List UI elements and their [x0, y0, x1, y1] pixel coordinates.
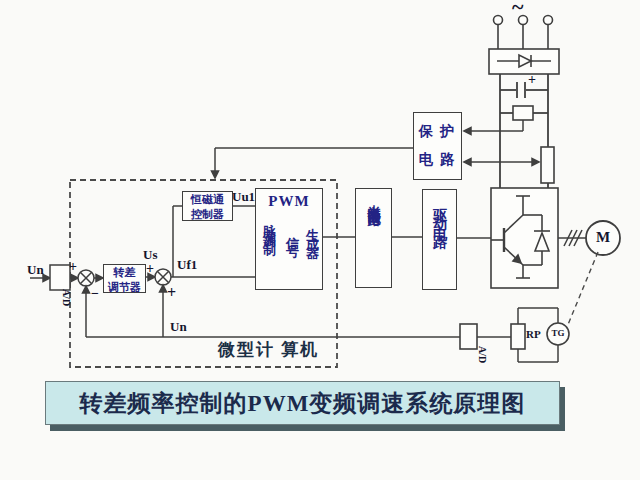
flux-controller-line2: 控制器: [183, 207, 232, 222]
driver-circuit-text: 驱动电路: [431, 197, 449, 233]
shunt-resistor: [541, 147, 554, 183]
arrow-icon: [83, 286, 90, 293]
ac-terminal-icon: [544, 16, 553, 25]
ad-feedback-box: [460, 324, 477, 349]
plus-sign: +: [167, 284, 176, 302]
inverter-block: [491, 188, 558, 288]
slip-regulator-block: 转差 调节器: [103, 264, 146, 293]
motor-tacho-coupling-dashed: [567, 252, 598, 327]
ac-symbol: ~: [512, 0, 523, 20]
arrow-icon: [96, 275, 103, 282]
plus-sign: +: [146, 261, 154, 277]
slip-regulator-line1: 转差: [104, 265, 145, 280]
uu1-label: Uu1: [232, 189, 255, 205]
un-input-label: Un: [27, 262, 44, 278]
capacitor-plus-label: +: [528, 72, 536, 88]
pwm-left-column: 脉宽调制: [260, 213, 278, 237]
pwm-generator-block: PWM 脉宽调制 信号 生成器: [255, 188, 323, 290]
arrow-icon: [160, 285, 167, 292]
arrow-icon: [464, 128, 471, 135]
ac-terminal-icon: [494, 16, 503, 25]
protection-line2: 电 路: [414, 151, 461, 169]
ac-input-wires: [494, 16, 553, 50]
pwm-right-column: 生成器: [303, 217, 321, 247]
driver-circuit-block: 驱动电路: [422, 189, 457, 290]
tacho-label: TG: [550, 328, 566, 338]
opto-isolation-text: 光电隔离电路: [365, 194, 383, 206]
uf1-label: Uf1: [177, 257, 197, 273]
protection-sense-wires: [212, 120, 540, 178]
slip-regulator-line2: 调节器: [104, 280, 145, 295]
arrow-icon: [71, 275, 78, 282]
protection-circuit-block: 保 护 电 路: [413, 112, 462, 180]
ad-input-label: A/D: [61, 286, 72, 310]
plus-sign: +: [69, 259, 77, 275]
motor-label: M: [593, 229, 613, 246]
protection-line1: 保 护: [414, 123, 461, 141]
dc-sense-resistor: [513, 106, 533, 120]
arrow-icon: [464, 159, 471, 166]
un-feedback-label: Un: [170, 319, 187, 335]
title-bar: 转差频率控制的PWM变频调速系统原理图: [45, 381, 560, 425]
rectifier-block: [489, 49, 559, 74]
microcomputer-label: 微型计 算机: [218, 338, 319, 361]
arrow-icon: [43, 275, 50, 282]
arrow-icon: [532, 159, 539, 166]
opto-isolation-block: 光电隔离电路: [355, 188, 392, 288]
minus-sign: −: [91, 286, 99, 302]
slide-canvas: ~ + 保 护 电 路 转差 调节器 恒磁通 控制器 PWM 脉宽调制 信号 生…: [0, 0, 640, 480]
pwm-title: PWM: [256, 193, 322, 210]
title-text: 转差频率控制的PWM变频调速系统原理图: [80, 388, 526, 419]
rp-label: RP: [526, 328, 541, 340]
ad-feedback-label: A/D: [477, 343, 488, 367]
arrow-icon: [212, 171, 219, 178]
flux-controller-block: 恒磁通 控制器: [182, 191, 233, 221]
rp-potentiometer-box: [511, 324, 525, 349]
flux-controller-line1: 恒磁通: [183, 192, 232, 207]
pwm-mid-column: 信号: [283, 227, 301, 243]
